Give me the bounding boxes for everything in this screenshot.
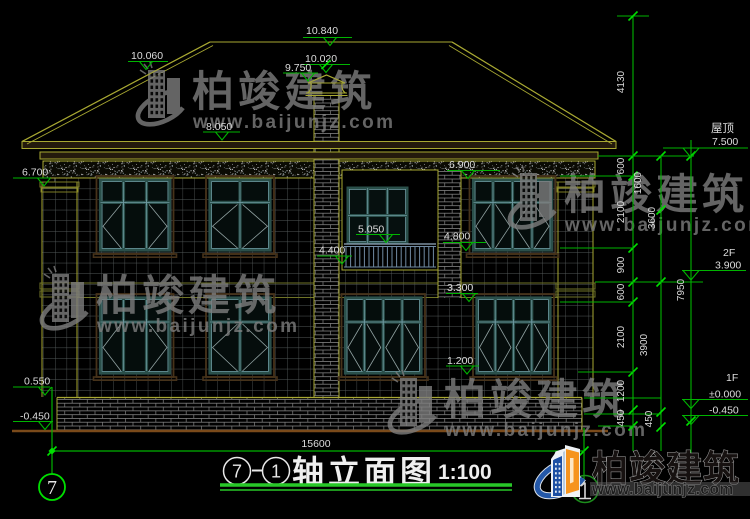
svg-text:450: 450 [644, 410, 655, 427]
svg-text:1:100: 1:100 [438, 461, 492, 484]
svg-text:600: 600 [616, 283, 627, 300]
svg-text:1F: 1F [726, 372, 738, 384]
svg-text:3600: 3600 [647, 206, 658, 229]
svg-text:4130: 4130 [616, 70, 627, 93]
svg-text:-0.450: -0.450 [709, 405, 739, 417]
svg-text:1.200: 1.200 [447, 355, 473, 367]
svg-text:7: 7 [232, 462, 242, 482]
svg-text:2100: 2100 [616, 200, 627, 223]
svg-text:1600: 1600 [633, 171, 644, 194]
svg-text:5.050: 5.050 [358, 224, 384, 236]
svg-text:1: 1 [271, 462, 281, 482]
svg-text:10.840: 10.840 [306, 25, 338, 37]
svg-text:屋顶: 屋顶 [711, 122, 734, 135]
svg-text:3.300: 3.300 [447, 282, 473, 294]
svg-text:7: 7 [47, 477, 57, 499]
svg-text:3900: 3900 [639, 333, 650, 356]
svg-text:900: 900 [616, 256, 627, 273]
svg-text:3.900: 3.900 [715, 260, 741, 272]
svg-text:4.800: 4.800 [444, 231, 470, 243]
svg-text:10.060: 10.060 [131, 50, 163, 62]
svg-text:8.050: 8.050 [206, 121, 232, 133]
svg-text:www.baijunjz.com: www.baijunjz.com [591, 481, 734, 498]
svg-text:15600: 15600 [301, 438, 330, 450]
svg-text:450: 450 [616, 409, 627, 426]
svg-text:6.700: 6.700 [22, 167, 48, 179]
svg-text:9.750: 9.750 [285, 62, 311, 74]
svg-text:600: 600 [616, 157, 627, 174]
svg-text:±0.000: ±0.000 [709, 389, 741, 401]
svg-text:2100: 2100 [616, 325, 627, 348]
svg-text:2F: 2F [723, 247, 735, 259]
svg-text:7.500: 7.500 [712, 136, 738, 148]
svg-text:-0.450: -0.450 [20, 411, 50, 423]
svg-text:1200: 1200 [616, 379, 627, 402]
svg-text:0.550: 0.550 [24, 376, 50, 388]
svg-text:4.400: 4.400 [319, 245, 345, 257]
svg-text:7950: 7950 [676, 278, 687, 301]
svg-text:6.900: 6.900 [449, 159, 475, 171]
